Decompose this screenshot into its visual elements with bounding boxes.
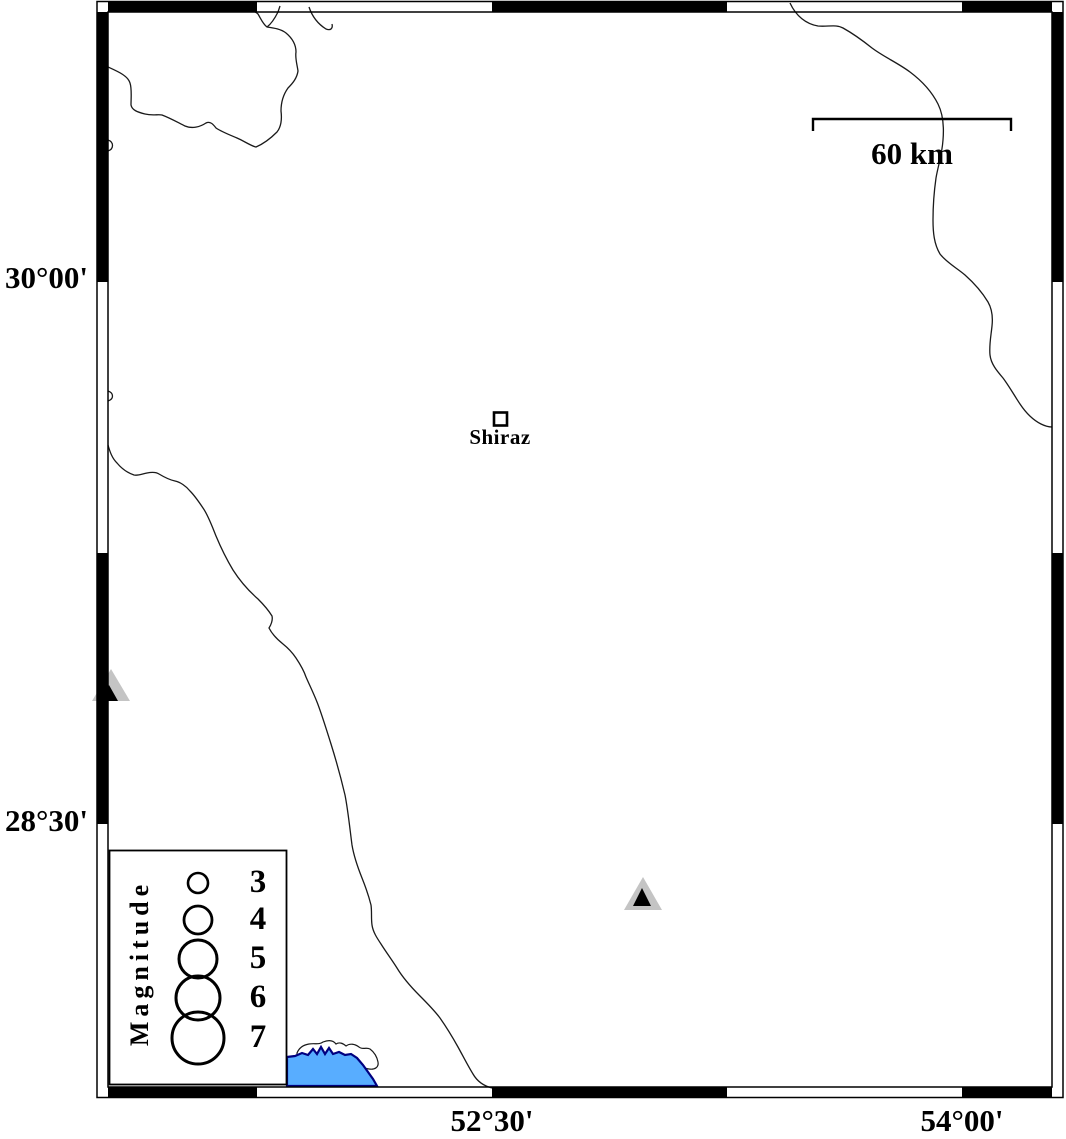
scale-bar [813, 119, 1011, 131]
river-path [790, 3, 1052, 427]
legend-size-label-3: 3 [236, 864, 280, 901]
coastline-horn2-path [309, 7, 332, 30]
coastline-blob-path [108, 8, 298, 147]
frame-seg [97, 553, 108, 824]
frame-seg [492, 1, 727, 12]
axis-label-lat-2830: 28°30' [0, 803, 88, 839]
frame-seg [1052, 12, 1063, 282]
axis-label-lon-54: 54°00' [882, 1103, 1042, 1139]
frame-seg [962, 1087, 1052, 1098]
frame-seg [97, 12, 108, 282]
scale-bar-label: 60 km [832, 136, 992, 172]
frame-seg [108, 1087, 257, 1098]
city-marker-icon [494, 413, 507, 426]
coastline-horn-path [267, 6, 280, 27]
frame-seg [108, 1, 257, 12]
axis-label-lat-30: 30°00' [0, 260, 88, 296]
frame-seg [962, 1, 1052, 12]
axis-label-lon-5230: 52°30' [412, 1103, 572, 1139]
frame-seg [492, 1087, 727, 1098]
legend-title: Magnitude [125, 863, 155, 1063]
frame-seg [1052, 553, 1063, 824]
city-label: Shiraz [440, 425, 560, 450]
legend-size-label-4: 4 [236, 901, 280, 938]
legend-size-label-6: 6 [236, 979, 280, 1016]
legend-size-label-7: 7 [236, 1019, 280, 1056]
legend-size-label-5: 5 [236, 940, 280, 977]
